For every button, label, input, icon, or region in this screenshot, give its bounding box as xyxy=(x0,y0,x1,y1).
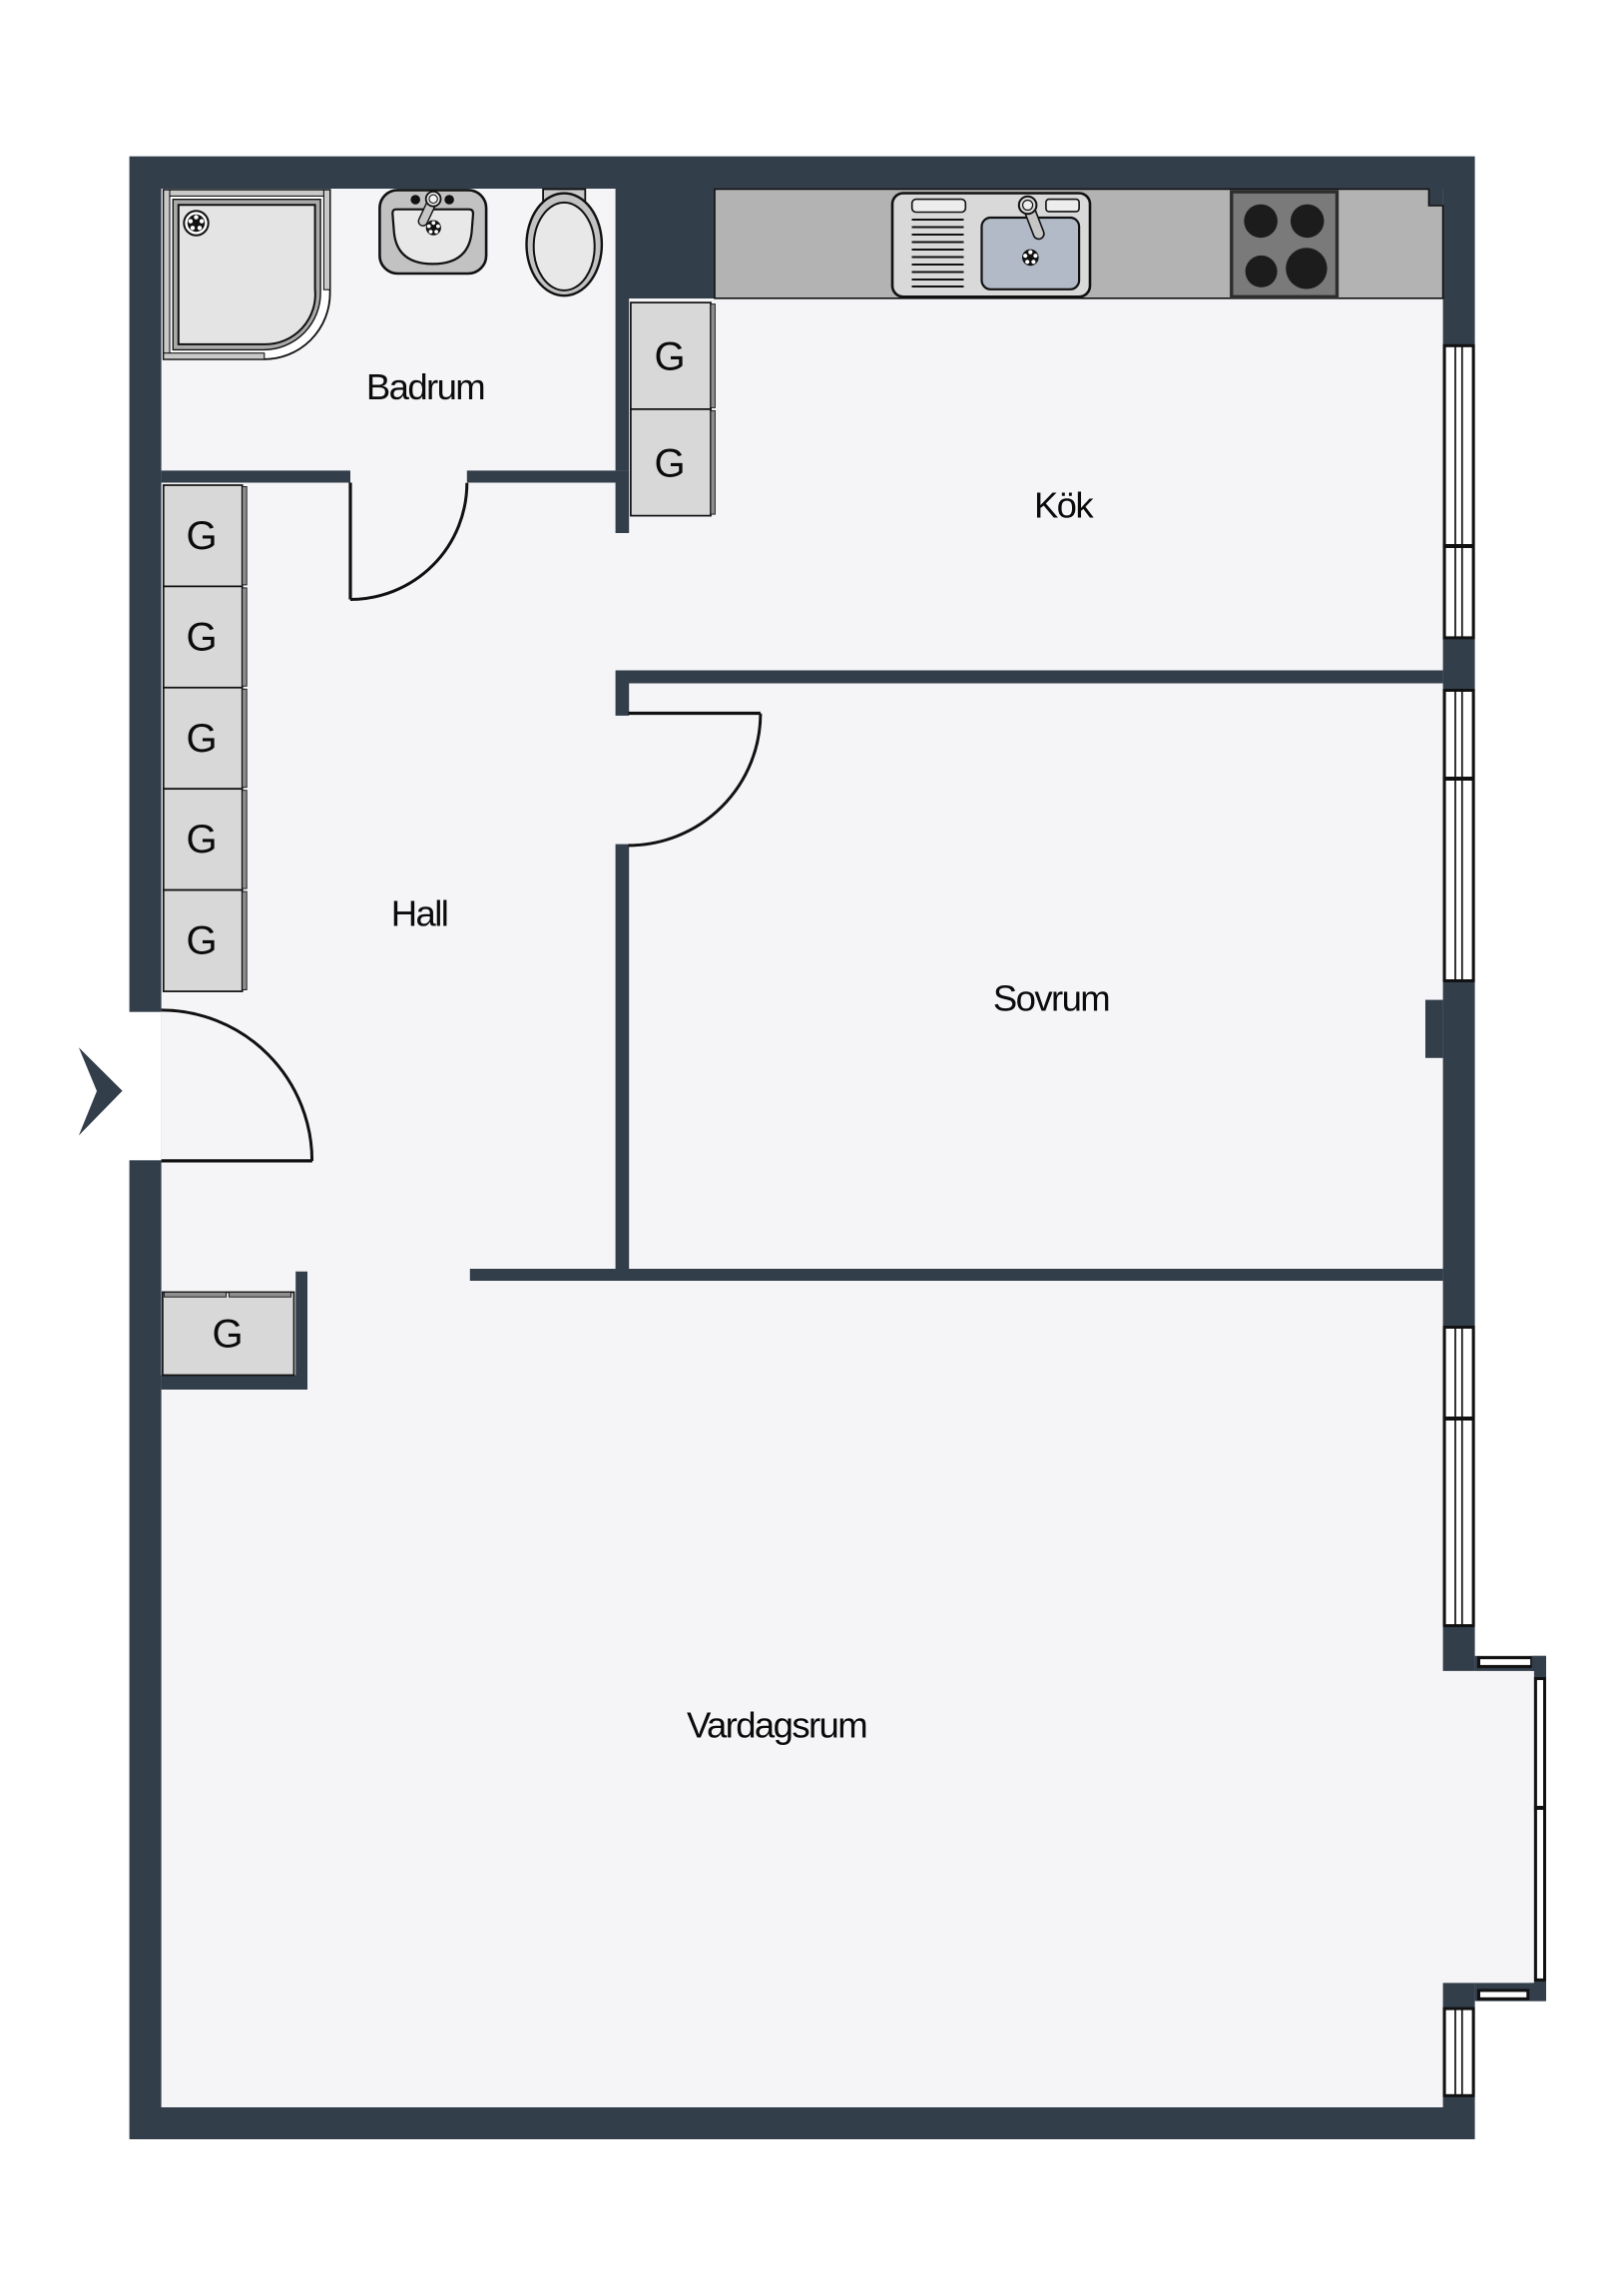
svg-text:G: G xyxy=(186,919,217,963)
svg-text:G: G xyxy=(654,335,685,379)
svg-text:Vardagsrum: Vardagsrum xyxy=(687,1705,866,1746)
svg-text:G: G xyxy=(186,514,217,558)
svg-text:Hall: Hall xyxy=(391,893,447,934)
svg-text:Badrum: Badrum xyxy=(366,366,484,407)
svg-text:G: G xyxy=(186,818,217,861)
svg-text:G: G xyxy=(654,441,685,485)
svg-text:G: G xyxy=(186,717,217,761)
svg-text:G: G xyxy=(212,1313,243,1357)
svg-text:Sovrum: Sovrum xyxy=(993,978,1109,1019)
svg-text:Kök: Kök xyxy=(1034,485,1094,526)
svg-text:G: G xyxy=(186,615,217,659)
